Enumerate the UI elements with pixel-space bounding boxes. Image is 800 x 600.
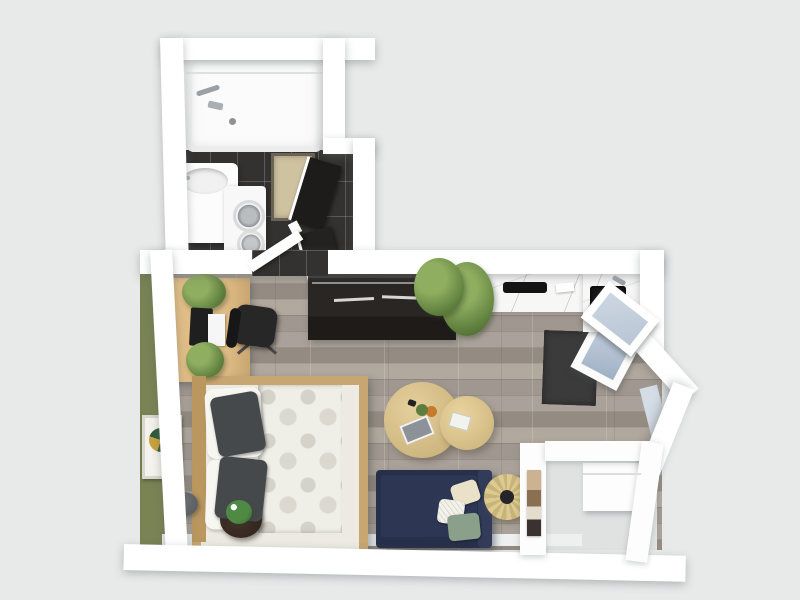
partition-artwork	[527, 470, 541, 536]
desk-papers	[208, 314, 225, 346]
cooktop	[503, 282, 547, 293]
sofa-cushion-sage	[447, 512, 482, 541]
bathroom-wall-right-upper	[323, 38, 345, 152]
side-table-center	[500, 490, 514, 504]
bed-pillow-dark-top	[209, 390, 267, 457]
floorplan-render	[0, 0, 800, 600]
counter-plant	[414, 258, 464, 316]
sink-bowl	[182, 168, 228, 194]
counter-papers	[556, 282, 575, 293]
table-decor-green	[416, 404, 428, 416]
desk-plant-top	[182, 274, 226, 310]
washer-door-icon	[233, 200, 265, 232]
bed-duvet	[258, 385, 342, 533]
main-wall-top	[140, 250, 664, 274]
desk-plant-bottom	[186, 342, 224, 378]
bathtub-shelf-line	[186, 72, 323, 74]
planter-flowers	[226, 500, 252, 524]
tub-drain-icon	[229, 118, 236, 125]
entry-cabinet-lid-line	[583, 473, 641, 475]
bathroom-wall-right-lower	[353, 138, 375, 266]
bathtub	[186, 56, 323, 152]
